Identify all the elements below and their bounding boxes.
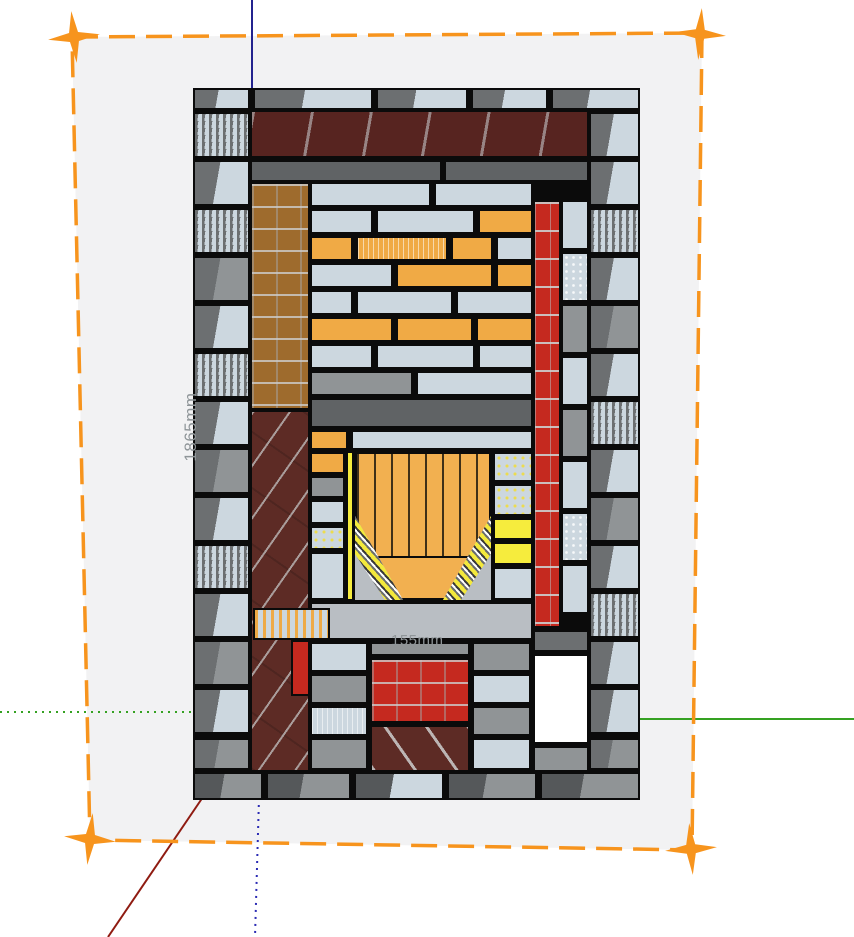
brick [376, 209, 475, 234]
brick [396, 317, 473, 342]
brick [310, 706, 368, 736]
brick [447, 772, 537, 800]
brick [561, 356, 589, 406]
brick [347, 452, 353, 600]
brick [266, 772, 351, 800]
brick [250, 182, 310, 410]
brick [193, 160, 250, 206]
brick [478, 209, 533, 234]
brick [561, 512, 589, 562]
masonry-structure [193, 88, 640, 800]
brick [250, 110, 589, 158]
brick [589, 160, 640, 206]
brick [561, 252, 589, 302]
brick [310, 371, 413, 396]
brick [253, 88, 373, 110]
brick [310, 290, 353, 315]
brick [561, 564, 589, 614]
brick [370, 658, 470, 723]
brick [589, 256, 640, 302]
brick [310, 642, 368, 672]
brick [310, 317, 393, 342]
brick [396, 263, 493, 288]
brick [376, 344, 475, 369]
brick [310, 452, 345, 474]
brick [589, 208, 640, 254]
viewport-3d[interactable]: 1865mm 155mm [0, 0, 854, 937]
brick [589, 640, 640, 686]
brick [193, 112, 250, 158]
brick [561, 200, 589, 250]
brick [589, 544, 640, 590]
brick [310, 236, 353, 261]
brick [493, 452, 533, 482]
brick [472, 738, 531, 770]
brick [193, 88, 250, 110]
brick [434, 182, 533, 207]
brick [493, 567, 533, 600]
brick [310, 430, 348, 450]
brick [310, 500, 345, 524]
brick [310, 674, 368, 704]
brick [456, 290, 533, 315]
brick [310, 398, 533, 428]
brick [193, 592, 250, 638]
brick [589, 112, 640, 158]
brick [310, 263, 393, 288]
brick [589, 688, 640, 734]
brick [193, 496, 250, 542]
brick [540, 772, 640, 800]
brick [310, 344, 373, 369]
brick [193, 640, 250, 686]
brick [416, 371, 533, 396]
brick [193, 304, 250, 350]
brick [472, 642, 531, 672]
brick [478, 344, 533, 369]
brick [561, 304, 589, 354]
brick [589, 738, 640, 770]
dimension-label-height: 1865mm [181, 382, 199, 472]
brick [493, 518, 533, 540]
brick [310, 476, 345, 498]
brick [561, 408, 589, 458]
brick [310, 738, 368, 770]
brick [589, 496, 640, 542]
brick [589, 448, 640, 494]
brick [356, 236, 448, 261]
brick [493, 542, 533, 565]
brick [310, 209, 373, 234]
brick [310, 526, 345, 550]
brick [551, 88, 640, 110]
brick [253, 608, 330, 640]
brick [472, 706, 531, 736]
brick [533, 200, 561, 628]
brick [310, 552, 345, 600]
brick [193, 772, 263, 800]
brick [451, 236, 493, 261]
brick [354, 772, 444, 800]
brick [193, 738, 250, 770]
brick [589, 352, 640, 398]
brick [370, 725, 470, 772]
brick [471, 88, 548, 110]
brick [193, 400, 250, 446]
brick [496, 263, 533, 288]
brick [250, 410, 310, 772]
brick [493, 484, 533, 516]
brick [193, 208, 250, 254]
brick [193, 688, 250, 734]
brick [250, 160, 442, 182]
brick [193, 448, 250, 494]
brick [356, 290, 453, 315]
brick [472, 674, 531, 704]
brick [376, 88, 468, 110]
dimension-label-depth: 155mm [391, 632, 444, 649]
brick [589, 304, 640, 350]
brick [589, 400, 640, 446]
brick [533, 654, 589, 744]
brick [193, 544, 250, 590]
brick [476, 317, 533, 342]
brick [193, 256, 250, 302]
brick [561, 460, 589, 510]
brick [193, 352, 250, 398]
brick [444, 160, 589, 182]
brick [291, 640, 310, 696]
brick [589, 592, 640, 638]
brick [533, 746, 589, 772]
brick [533, 630, 589, 652]
brick [351, 430, 533, 450]
brick [310, 182, 431, 207]
brick [496, 236, 533, 261]
